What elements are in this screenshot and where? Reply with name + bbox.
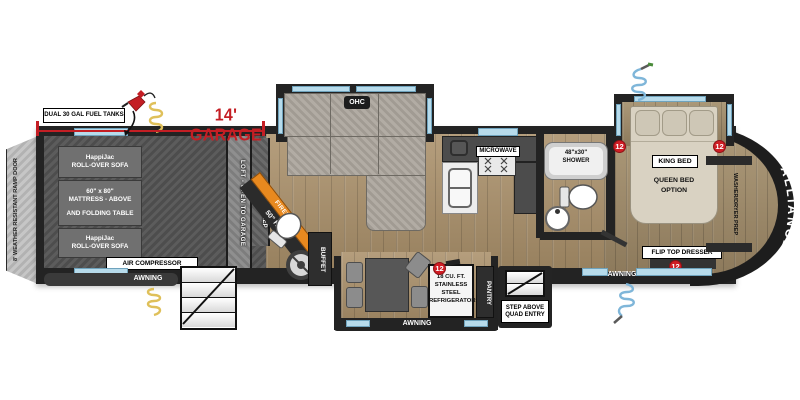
buffet-label: BUFFET xyxy=(314,238,326,282)
sofa-cushion-divider xyxy=(330,94,331,174)
bath-wall-left xyxy=(536,134,544,238)
ramp-door-label: 8' WEATHER RESISTANT RAMP DOOR xyxy=(13,142,25,278)
sectional-sofa-seat xyxy=(287,136,426,176)
steps-diagonal xyxy=(505,270,545,297)
steps-diagonal xyxy=(180,266,237,330)
entry-text: STEP ABOVE xyxy=(502,305,548,312)
dinette-table xyxy=(365,258,409,312)
ohc-label: OHC xyxy=(344,96,370,109)
window xyxy=(464,320,488,327)
mattress-table-area: 60" x 80" MATTRESS - ABOVE AND FOLDING T… xyxy=(58,180,142,226)
ohc-text: OHC xyxy=(349,99,365,106)
window xyxy=(616,104,621,136)
sofa-label: HappiJac xyxy=(59,235,141,243)
fridge-text: STAINLESS STEEL xyxy=(429,282,473,298)
power-cord-icon xyxy=(144,283,164,317)
window xyxy=(346,320,370,327)
shower-text: 48"x30" xyxy=(549,150,603,158)
awning-label: AWNING xyxy=(600,271,644,278)
window xyxy=(356,86,416,92)
microwave-label: MICROWAVE xyxy=(476,146,520,157)
sofa-label: ROLL-OVER SOFA xyxy=(59,243,141,251)
window xyxy=(278,98,283,134)
sofa-label: HappiJac xyxy=(59,154,141,162)
pantry-label: PANTRY xyxy=(480,272,491,314)
bed-pillow xyxy=(662,110,687,136)
mattress-label: MATTRESS - ABOVE xyxy=(59,196,141,204)
window xyxy=(478,128,518,136)
brand-arc: ALLIANCE xyxy=(712,118,796,298)
king-bed-label: KING BED xyxy=(652,155,698,168)
bed-pillow xyxy=(689,110,714,136)
floorplan: 8' WEATHER RESISTANT RAMP DOOR OHC LOFT … xyxy=(0,0,800,400)
garage-dim-label: 14' GARAGE xyxy=(184,106,268,146)
shower-text: SHOWER xyxy=(549,158,603,166)
fuel-pump-icon xyxy=(118,86,158,138)
quad-entry-label: STEP ABOVE QUAD ENTRY xyxy=(501,300,549,323)
awning-label: AWNING xyxy=(389,320,445,327)
feature-marker: 12 xyxy=(433,262,446,275)
dinette-chair xyxy=(346,262,363,283)
dinette-chair xyxy=(346,287,363,308)
fridge-text: REFRIGERATOR xyxy=(429,298,473,306)
marker-number: 12 xyxy=(435,264,443,273)
prep-sink xyxy=(450,140,468,156)
entry-text: QUAD ENTRY xyxy=(502,312,548,319)
loft-label: LOFT - OPEN TO GARAGE xyxy=(232,142,245,264)
fridge-text: 18 CU. FT. xyxy=(429,274,473,282)
kitchen-sink-divider xyxy=(450,187,470,189)
sofa-cushion-divider xyxy=(378,94,379,174)
mattress-label: 60" x 80" xyxy=(59,188,141,196)
svg-text:ALLIANCE: ALLIANCE xyxy=(778,165,796,254)
feature-marker: 12 xyxy=(613,140,626,153)
stove-burners xyxy=(478,154,516,176)
sink-faucet xyxy=(555,209,560,214)
awning-label: AWNING xyxy=(118,275,178,282)
bed-pillow xyxy=(635,110,660,136)
bed-seam xyxy=(631,141,717,142)
microwave-text: MICROWAVE xyxy=(477,148,519,155)
rollover-sofa-top: HappiJac ROLL-OVER SOFA xyxy=(58,146,142,178)
window xyxy=(427,98,432,134)
dinette-chair xyxy=(411,286,428,308)
garage-dim-tick xyxy=(36,121,39,136)
shower-label: 48"x30" SHOWER xyxy=(549,150,603,165)
spray-port-hose-icon xyxy=(606,282,640,326)
queen-text: OPTION xyxy=(642,186,706,196)
brand-text: ALLIANCE xyxy=(778,165,796,254)
sectional-sofa-chaise xyxy=(366,175,426,231)
window xyxy=(636,268,712,276)
mattress-label: AND FOLDING TABLE xyxy=(59,210,141,218)
spray-port-hose-icon xyxy=(624,62,658,102)
king-bed-text: KING BED xyxy=(653,158,697,166)
fuel-tanks-text: DUAL 30 GAL FUEL TANKS xyxy=(44,112,124,119)
sofa-label: ROLL-OVER SOFA xyxy=(59,162,141,170)
fuel-tanks-label: DUAL 30 GAL FUEL TANKS xyxy=(43,108,125,123)
window xyxy=(292,86,350,92)
queen-text: QUEEN BED xyxy=(642,176,706,186)
refrigerator-label: 18 CU. FT. STAINLESS STEEL REFRIGERATOR xyxy=(429,274,473,306)
marker-number: 12 xyxy=(615,142,623,151)
rollover-sofa-bottom: HappiJac ROLL-OVER SOFA xyxy=(58,228,142,258)
queen-option-label: QUEEN BED OPTION xyxy=(642,176,706,195)
